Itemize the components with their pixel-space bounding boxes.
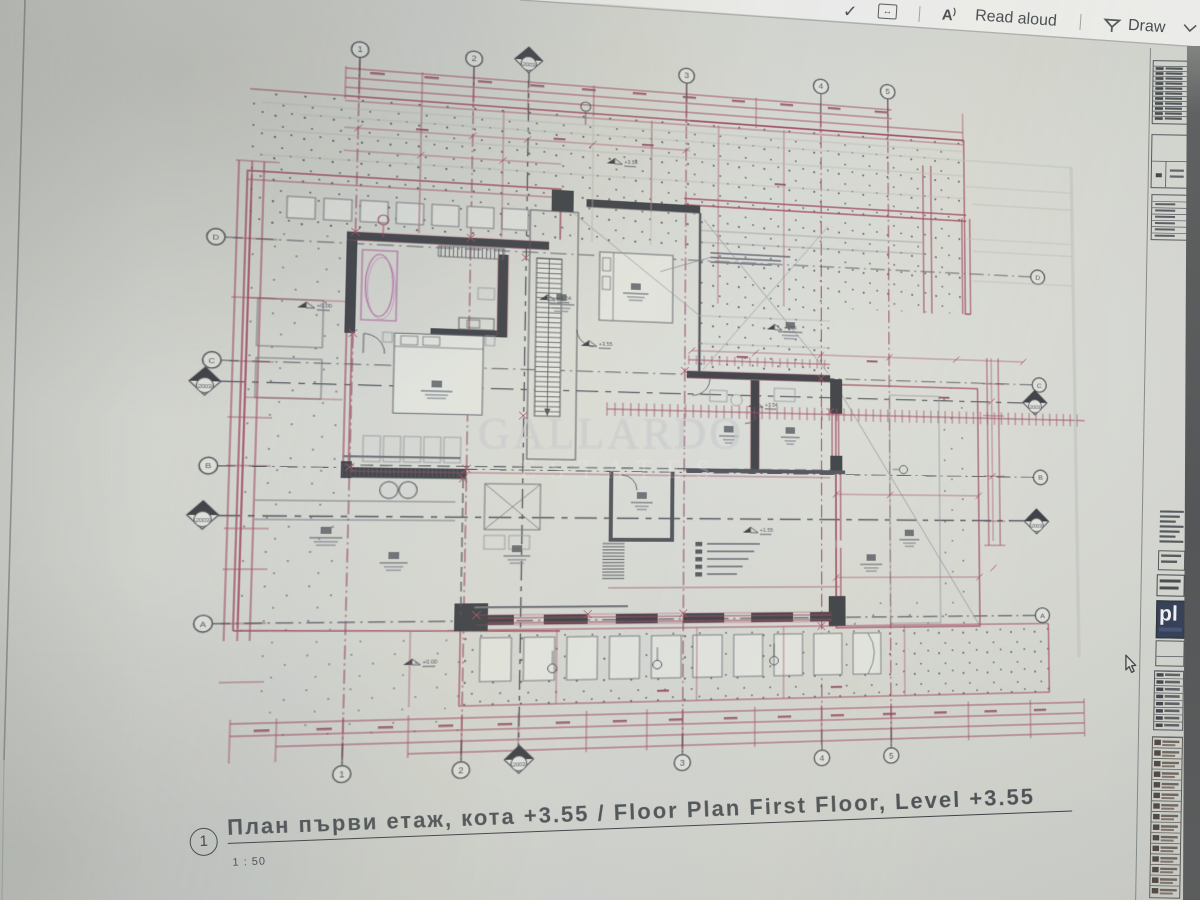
svg-text:+3.54: +3.54: [765, 403, 779, 409]
svg-text:3: 3: [684, 70, 689, 80]
svg-text:+1.55: +1.55: [760, 528, 773, 533]
svg-text:A: A: [200, 619, 207, 629]
svg-text:+0.00: +0.00: [317, 303, 332, 309]
svg-text:C: C: [1037, 381, 1042, 390]
svg-text:2: 2: [458, 764, 464, 775]
svg-text:2003: 2003: [195, 518, 209, 524]
svg-text:+3.54: +3.54: [557, 296, 572, 302]
svg-text:+3.55: +3.55: [599, 342, 613, 348]
svg-text:D: D: [213, 232, 220, 242]
svg-text:2003: 2003: [512, 762, 525, 768]
svg-text:+0.00: +0.00: [422, 660, 437, 666]
svg-text:2003: 2003: [198, 384, 212, 390]
svg-text:3: 3: [680, 757, 685, 767]
svg-text:4: 4: [820, 752, 825, 762]
svg-text:2003: 2003: [1030, 405, 1041, 410]
svg-text:4: 4: [819, 81, 824, 91]
svg-text:C: C: [208, 355, 215, 365]
svg-text:D: D: [1035, 273, 1040, 282]
svg-text:A: A: [1040, 611, 1045, 620]
svg-text:2003: 2003: [1031, 524, 1042, 529]
svg-text:B: B: [1038, 473, 1043, 482]
svg-text:+3.54: +3.54: [624, 160, 638, 166]
svg-text:1: 1: [339, 768, 345, 779]
svg-text:5: 5: [889, 750, 894, 760]
svg-text:B: B: [205, 461, 212, 471]
svg-text:+3.55: +3.55: [784, 326, 797, 332]
svg-text:5: 5: [885, 87, 889, 96]
